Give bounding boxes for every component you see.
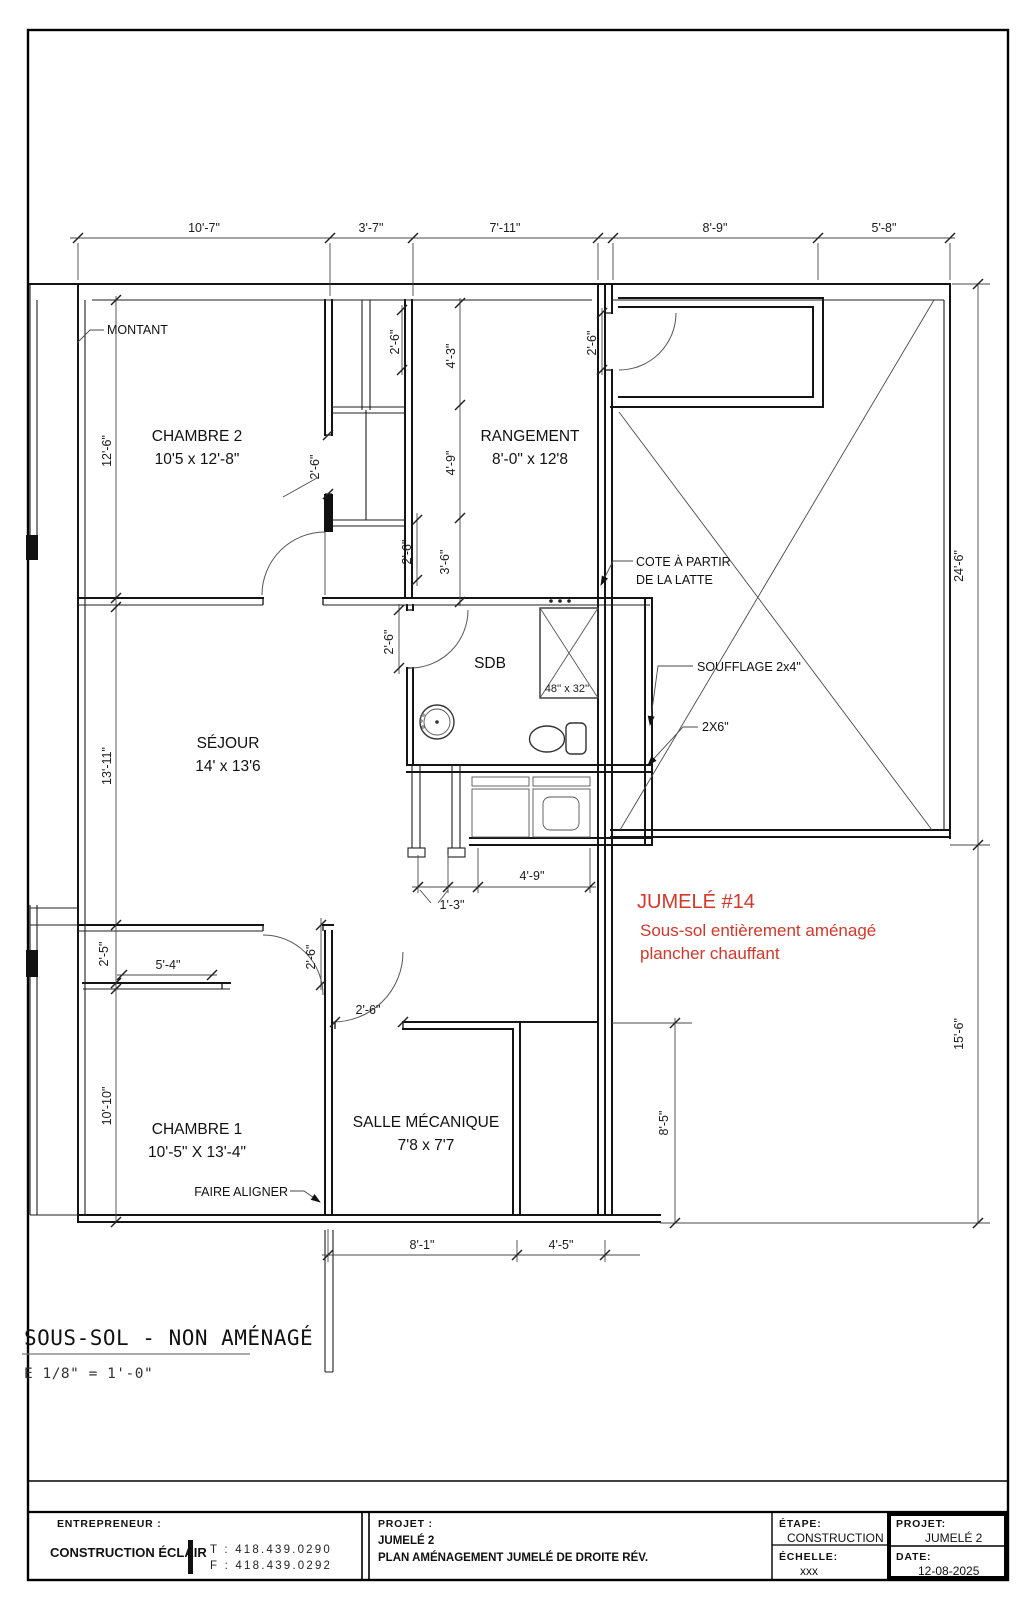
door-right-unit-room xyxy=(619,313,676,370)
dim-label: 2'-6" xyxy=(585,331,599,356)
dim-label: 4'-5" xyxy=(549,1238,574,1252)
door-jamb-block xyxy=(324,494,333,532)
etape-label: ÉTAPE: xyxy=(779,1517,822,1530)
phone-t: T : 418.439.0290 xyxy=(210,1544,332,1556)
sheet-title-area: SOUS-SOL - NON AMÉNAGÉ E 1/8" = 1'-0" xyxy=(22,1325,313,1382)
room-size-chambre2: 10'5 x 12'-8" xyxy=(155,451,240,468)
dim-label: 4'-9" xyxy=(444,451,458,476)
wall-dots xyxy=(549,599,571,603)
title-block: ENTREPRENEUR : CONSTRUCTION ÉCLAIR T : 4… xyxy=(28,1512,1008,1580)
dim-label: 12'-6" xyxy=(100,435,114,467)
dim-label: 2'-6" xyxy=(382,630,396,655)
annotation-montant: MONTANT xyxy=(107,323,168,337)
red-note-title: JUMELÉ #14 xyxy=(637,890,755,913)
stub-walls xyxy=(408,765,465,857)
entrepreneur-name: CONSTRUCTION ÉCLAIR xyxy=(50,1545,207,1560)
projet-name: JUMELÉ 2 xyxy=(378,1534,434,1547)
shower-size-label: 48'' x 32'' xyxy=(545,683,589,695)
room-size-sejour: 14' x 13'6 xyxy=(195,758,260,775)
dim-label: 2'-6" xyxy=(356,1003,381,1017)
annotation-faire-aligner: FAIRE ALIGNER xyxy=(194,1185,288,1199)
dim-label: 10'-7" xyxy=(188,221,220,235)
room-size-rangement: 8'-0" x 12'8 xyxy=(492,451,568,468)
projet-label: PROJET : xyxy=(378,1518,433,1530)
room-name-chambre1: CHAMBRE 1 xyxy=(152,1121,242,1138)
dim-label: 4'-9" xyxy=(520,869,545,883)
annotation-cote-line2: DE LA LATTE xyxy=(636,573,713,587)
red-note-line1: Sous-sol entièrement aménagé xyxy=(640,921,876,940)
projet2-label: PROJET: xyxy=(896,1518,946,1530)
annotation-2x6: 2X6" xyxy=(702,720,729,734)
dim-label: 5'-4" xyxy=(156,958,181,972)
shower: 48'' x 32'' xyxy=(540,608,598,698)
door-sdb xyxy=(410,610,468,668)
room-name-salle-mecanique: SALLE MÉCANIQUE xyxy=(353,1114,499,1131)
annotation-cote-line1: COTE À PARTIR xyxy=(636,554,731,569)
projet2-value: JUMELÉ 2 xyxy=(925,1530,983,1545)
dim-label: 8'-5" xyxy=(657,1111,671,1136)
etape-value: CONSTRUCTION xyxy=(787,1531,884,1545)
sink xyxy=(420,705,454,739)
dim-label: 7'-11" xyxy=(490,221,521,235)
dim-label: 2'-6" xyxy=(308,455,322,480)
neighbour-wall-block xyxy=(26,950,38,977)
door-chambre2 xyxy=(262,532,325,595)
walls xyxy=(26,284,950,1372)
dim-label: 10'-10" xyxy=(100,1087,114,1126)
dim-label: 8'-9" xyxy=(703,221,728,235)
room-name-sdb: SDB xyxy=(474,655,506,672)
dim-label: 2'-6" xyxy=(400,540,414,565)
date-value: 12-08-2025 xyxy=(918,1564,980,1578)
fixtures: 48'' x 32'' xyxy=(408,599,598,857)
dim-label: 2'-6" xyxy=(388,330,402,355)
room-size-chambre1: 10'-5" X 13'-4" xyxy=(148,1144,246,1161)
washer-dryer xyxy=(472,777,590,837)
dim-label: 3'-7" xyxy=(359,221,384,235)
neighbour-wall-block xyxy=(26,535,38,560)
dim-label: 4'-3" xyxy=(444,344,458,369)
dim-label: 5'-8" xyxy=(872,221,897,235)
dim-label: 1'-3" xyxy=(440,898,465,912)
sheet-scale-note: E 1/8" = 1'-0" xyxy=(24,1366,153,1382)
floorplan-sheet: 48'' x 32'' xyxy=(0,0,1036,1600)
date-label: DATE: xyxy=(896,1551,931,1563)
dim-label: 3'-6" xyxy=(438,550,452,575)
echelle-value: xxx xyxy=(800,1564,818,1578)
dim-label: 8'-1" xyxy=(410,1238,435,1252)
phone-f: F : 418.439.0292 xyxy=(210,1560,332,1572)
projet-desc: PLAN AMÉNAGEMENT JUMELÉ DE DROITE RÉV. xyxy=(378,1551,648,1564)
room-labels: CHAMBRE 2 10'5 x 12'-8" RANGEMENT 8'-0" … xyxy=(148,428,580,1161)
dim-label: 15'-6" xyxy=(952,1018,966,1050)
dim-label: 24'-6" xyxy=(952,550,966,582)
entrepreneur-label: ENTREPRENEUR : xyxy=(57,1518,162,1530)
red-note-line2: plancher chauffant xyxy=(640,944,780,963)
toilet xyxy=(530,723,587,754)
room-name-sejour: SÉJOUR xyxy=(197,735,260,752)
dim-label: 2'-6" xyxy=(304,945,318,970)
room-name-rangement: RANGEMENT xyxy=(480,428,580,445)
red-notes: JUMELÉ #14 Sous-sol entièrement aménagé … xyxy=(637,890,876,963)
sheet-title: SOUS-SOL - NON AMÉNAGÉ xyxy=(24,1325,313,1350)
echelle-label: ÉCHELLE: xyxy=(779,1550,838,1563)
dim-label: 2'-5" xyxy=(97,942,111,967)
room-size-salle-mecanique: 7'8 x 7'7 xyxy=(398,1137,455,1154)
annotation-soufflage: SOUFFLAGE 2x4" xyxy=(697,660,801,674)
room-name-chambre2: CHAMBRE 2 xyxy=(152,428,242,445)
dim-label: 13'-11" xyxy=(100,747,114,785)
